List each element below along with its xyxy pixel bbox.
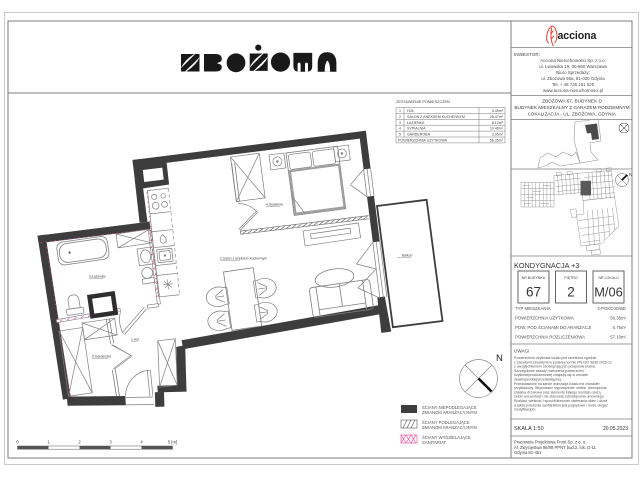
svg-text:1.Hol: 1.Hol <box>131 338 139 342</box>
svg-text:M/06: M/06 <box>594 285 622 300</box>
svg-text:ZESTAWIENIE POMIESZCZEŃ: ZESTAWIENIE POMIESZCZEŃ <box>396 100 450 104</box>
svg-text:2-POKOJOWE: 2-POKOJOWE <box>597 306 626 311</box>
svg-text:28.47m²: 28.47m² <box>490 115 504 119</box>
svg-text:3: 3 <box>399 121 401 125</box>
svg-text:Biuro Sprzedaży:: Biuro Sprzedaży: <box>556 70 589 75</box>
svg-text:5.35m²: 5.35m² <box>492 109 504 113</box>
svg-text:1: 1 <box>399 109 401 113</box>
svg-text:SANITARIAT: SANITARIAT <box>422 440 446 445</box>
svg-text:10.46m²: 10.46m² <box>490 127 504 131</box>
svg-text:4: 4 <box>399 127 401 131</box>
svg-text:ul. Zbożowa 56a, 81-020 Gdynia: ul. Zbożowa 56a, 81-020 Gdynia <box>541 76 605 81</box>
svg-text:POWIERZCHNIA UŻYTKOWA: POWIERZCHNIA UŻYTKOWA <box>398 138 448 143</box>
svg-text:TYP MIESZKANIA: TYP MIESZKANIA <box>515 306 551 311</box>
svg-text:8.12m²: 8.12m² <box>492 121 504 125</box>
svg-text:PIĘTRO: PIĘTRO <box>564 276 578 280</box>
svg-text:N: N <box>496 353 503 364</box>
svg-text:KONDYGNACJA +3: KONDYGNACJA +3 <box>514 261 580 270</box>
svg-text:acciona: acciona <box>558 30 597 42</box>
svg-text:Balkon: Balkon <box>402 254 412 258</box>
svg-text:Tel. + 48 725 151 520: Tel. + 48 725 151 520 <box>552 82 595 87</box>
svg-text:2.Salon z aneksem kuchennym: 2.Salon z aneksem kuchennym <box>220 257 267 261</box>
svg-text:ŁAZIENKA: ŁAZIENKA <box>407 121 425 125</box>
svg-text:Al. Zwycięstwa 96/98 PPNT bud.: Al. Zwycięstwa 96/98 PPNT bud.2, lok. D-… <box>514 445 597 450</box>
svg-text:UWAGI: UWAGI <box>514 349 529 354</box>
svg-text:BUDYNEK MIESZKALNY Z GARAŻEM P: BUDYNEK MIESZKALNY Z GARAŻEM PODZIEMNYM <box>514 104 629 110</box>
svg-text:ul. Lwowska 19, 00-660 Warszaw: ul. Lwowska 19, 00-660 Warszawa <box>539 64 607 69</box>
svg-text:Pracownia Projektowa Front Sp.: Pracownia Projektowa Front Sp. z o. o. <box>514 440 586 445</box>
svg-text:0.75m²: 0.75m² <box>613 325 627 330</box>
svg-text:POWIERZCHNIA UŻYTKOWA: POWIERZCHNIA UŻYTKOWA <box>515 316 574 321</box>
svg-text:POWIERZCHNIA ROZLICZENIOWA: POWIERZCHNIA ROZLICZENIOWA <box>515 335 585 340</box>
svg-text:modyfikacjom.: modyfikacjom. <box>514 408 536 412</box>
svg-text:20.05.2023: 20.05.2023 <box>603 426 628 432</box>
svg-text:5: 5 <box>399 133 401 137</box>
svg-text:SYPIALNIA: SYPIALNIA <box>407 127 426 131</box>
svg-text:67: 67 <box>526 285 541 300</box>
svg-text:SKALA 1:50: SKALA 1:50 <box>514 426 544 432</box>
svg-text:SALON Z ANEKSEM KUCHENNYM: SALON Z ANEKSEM KUCHENNYM <box>407 115 465 119</box>
svg-text:N: N <box>629 172 632 177</box>
svg-text:Acciona Nieruchomości Sp. z o.: Acciona Nieruchomości Sp. z o.o. <box>540 58 606 63</box>
svg-text:NR BUDYNKU: NR BUDYNKU <box>522 276 546 280</box>
svg-text:57.10m²: 57.10m² <box>610 335 626 340</box>
svg-text:GARDEROBA: GARDEROBA <box>407 133 431 137</box>
svg-text:NR LOKALU: NR LOKALU <box>598 276 619 280</box>
svg-text:HOL: HOL <box>407 109 414 113</box>
svg-text:56.35m²: 56.35m² <box>490 139 504 143</box>
svg-text:INWESTOR:: INWESTOR: <box>514 52 540 57</box>
svg-text:2: 2 <box>567 285 575 300</box>
svg-text:56.35m²: 56.35m² <box>610 316 626 321</box>
svg-text:5.Garderoba: 5.Garderoba <box>92 355 111 359</box>
svg-text:ZBOŻOWA 67, BUDYNEK D: ZBOŻOWA 67, BUDYNEK D <box>542 98 602 104</box>
svg-text:3.95m²: 3.95m² <box>492 133 504 137</box>
svg-text:2: 2 <box>399 115 401 119</box>
svg-text:ZMIANOM ARANŻACYJNYM: ZMIANOM ARANŻACYJNYM <box>422 410 477 415</box>
svg-text:4.Sypialnia: 4.Sypialnia <box>266 203 283 207</box>
svg-text:Gdynia 81-451: Gdynia 81-451 <box>514 450 542 455</box>
svg-text:5 [m]: 5 [m] <box>168 440 177 445</box>
svg-text:3.Łazienka: 3.Łazienka <box>89 275 106 279</box>
svg-text:ZMIANOM ARANŻACYJNYM: ZMIANOM ARANŻACYJNYM <box>422 425 477 430</box>
svg-text:www.acciona-nieruchomosci.pl: www.acciona-nieruchomosci.pl <box>543 88 603 93</box>
svg-text:LOKALIZACJA - UL. ZBOŻOWA, GDY: LOKALIZACJA - UL. ZBOŻOWA, GDYNIA <box>528 111 617 117</box>
svg-text:POW. POD ŚCIANAMI DO ARANŻACJI: POW. POD ŚCIANAMI DO ARANŻACJI <box>515 325 591 330</box>
